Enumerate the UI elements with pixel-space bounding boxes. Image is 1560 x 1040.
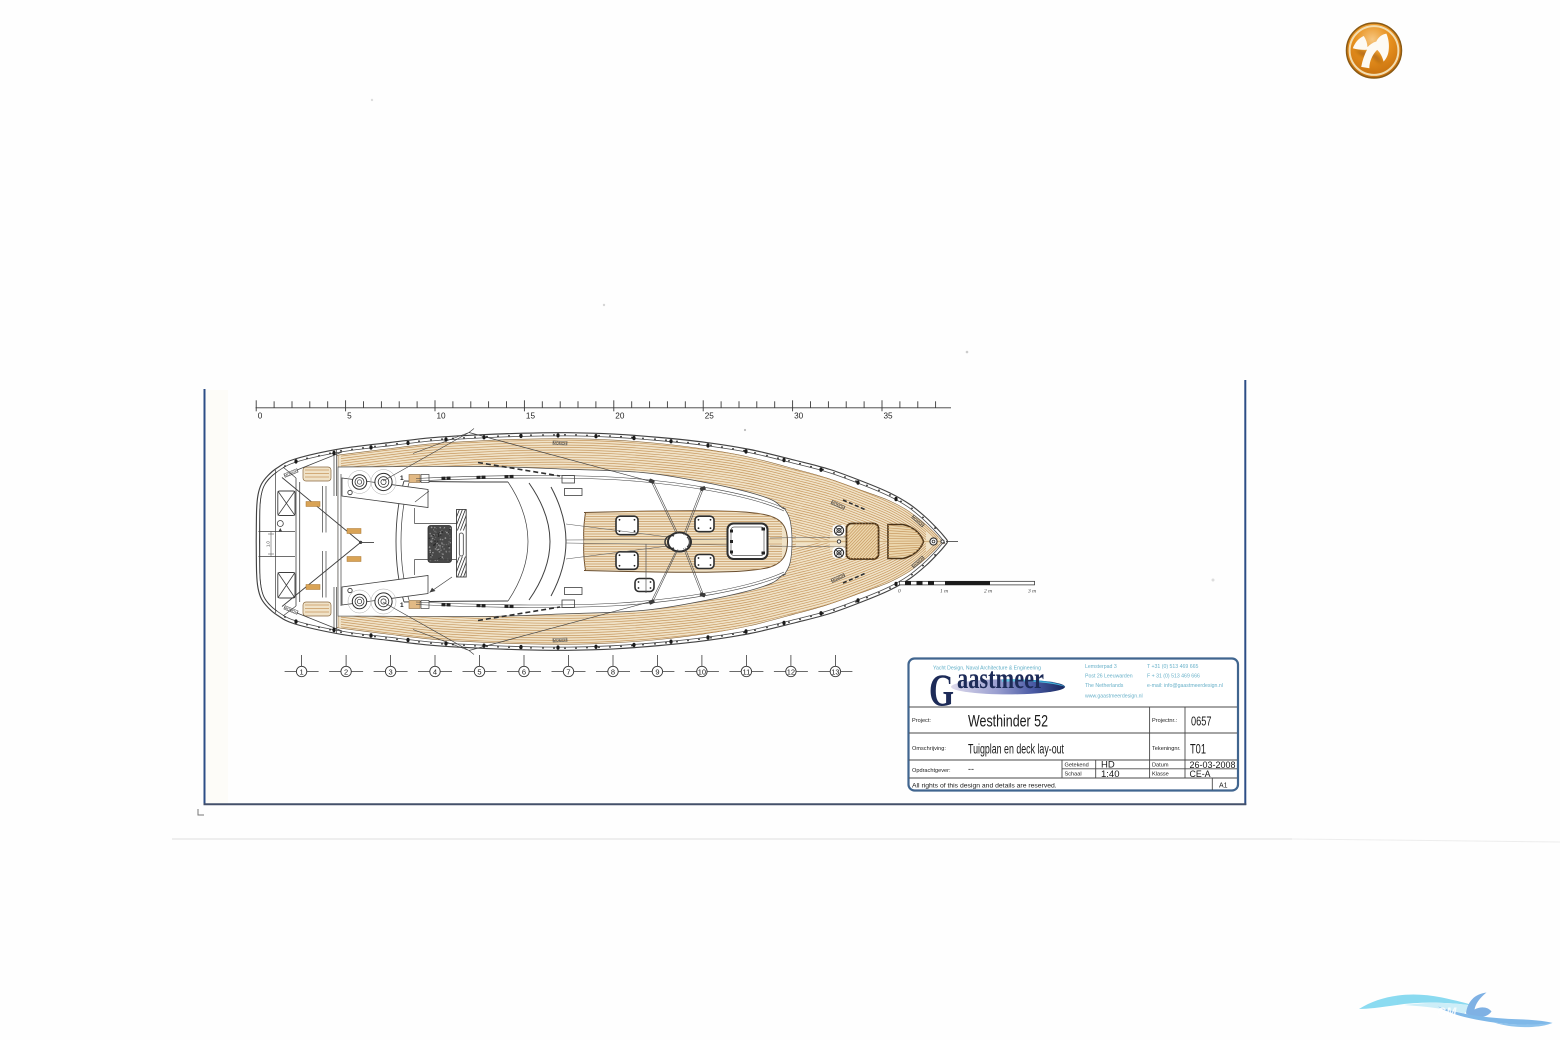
svg-text:8: 8 [611, 667, 615, 676]
svg-text:--: -- [968, 764, 974, 774]
svg-text:5: 5 [477, 667, 481, 676]
svg-text:1:40: 1:40 [1101, 769, 1120, 780]
svg-text:0: 0 [258, 412, 263, 421]
svg-text:20: 20 [615, 412, 625, 421]
svg-text:Westhinder 52: Westhinder 52 [968, 713, 1048, 731]
svg-text:35: 35 [884, 412, 894, 421]
svg-text:All rights of this design and: All rights of this design and details ar… [912, 783, 1057, 790]
svg-text:Projectnr.:: Projectnr.: [1152, 718, 1178, 724]
svg-text:11: 11 [743, 667, 751, 676]
svg-text:15: 15 [526, 412, 536, 421]
svg-text:12: 12 [787, 667, 795, 676]
svg-text:1 m: 1 m [940, 589, 948, 595]
svg-text:Datum: Datum [1152, 763, 1169, 769]
svg-text:e-mail: info@gaastmeerdesign.n: e-mail: info@gaastmeerdesign.nl [1147, 683, 1223, 689]
svg-text:4: 4 [433, 667, 437, 676]
svg-text:Getekend: Getekend [1065, 763, 1089, 769]
svg-text:T +31 (0) 513 469 665: T +31 (0) 513 469 665 [1147, 664, 1199, 670]
svg-text:10: 10 [698, 667, 706, 676]
svg-text:10: 10 [437, 412, 447, 421]
svg-text:Lemsterpad 3: Lemsterpad 3 [1085, 664, 1117, 670]
svg-text:7: 7 [566, 667, 570, 676]
svg-text:Yacht Design, Naval Architectu: Yacht Design, Naval Architecture & Engin… [933, 666, 1041, 672]
svg-text:MOMOH: MOMOH [553, 638, 568, 643]
svg-text:3: 3 [389, 667, 393, 676]
svg-text:MOMOH: MOMOH [553, 441, 568, 446]
svg-text:6: 6 [522, 667, 526, 676]
svg-text:CE-A: CE-A [1190, 769, 1212, 780]
svg-text:The Netherlands: The Netherlands [1085, 683, 1124, 689]
svg-text:9: 9 [655, 667, 659, 676]
svg-text:1: 1 [300, 667, 304, 676]
svg-text:1: 1 [400, 475, 404, 482]
svg-text:Project:: Project: [912, 718, 931, 724]
svg-text:1: 1 [400, 602, 404, 609]
svg-text:Tekeningnr.: Tekeningnr. [1152, 746, 1181, 752]
svg-text:0657: 0657 [1191, 715, 1212, 729]
svg-text:13: 13 [831, 667, 839, 676]
svg-text:A1: A1 [1219, 783, 1228, 790]
svg-text:Klasse: Klasse [1152, 772, 1169, 778]
svg-text:2: 2 [344, 667, 348, 676]
svg-text:Omschrijving:: Omschrijving: [912, 746, 946, 752]
svg-text:25: 25 [705, 412, 715, 421]
svg-text:Schaal: Schaal [1065, 772, 1082, 778]
svg-text:0: 0 [898, 589, 901, 595]
svg-text:G: G [929, 666, 954, 716]
svg-text:Tuigplan en deck lay-out: Tuigplan en deck lay-out [968, 742, 1064, 757]
svg-text:Post 26 Leeuwarden: Post 26 Leeuwarden [1085, 674, 1133, 680]
svg-text:2 m: 2 m [984, 589, 992, 595]
svg-text:F + 31 (0) 513 469 666: F + 31 (0) 513 469 666 [1147, 674, 1200, 680]
svg-text:30: 30 [794, 412, 804, 421]
svg-text:GM: GM [1437, 1005, 1457, 1019]
svg-text:3 m: 3 m [1027, 589, 1036, 595]
svg-text:www.gaastmeerdesign.nl: www.gaastmeerdesign.nl [1085, 694, 1143, 700]
svg-text:Opdrachtgever:: Opdrachtgever: [912, 768, 951, 774]
svg-text:5: 5 [347, 412, 352, 421]
svg-text:T01: T01 [1190, 742, 1206, 757]
svg-text:1.0: 1.0 [266, 541, 271, 547]
